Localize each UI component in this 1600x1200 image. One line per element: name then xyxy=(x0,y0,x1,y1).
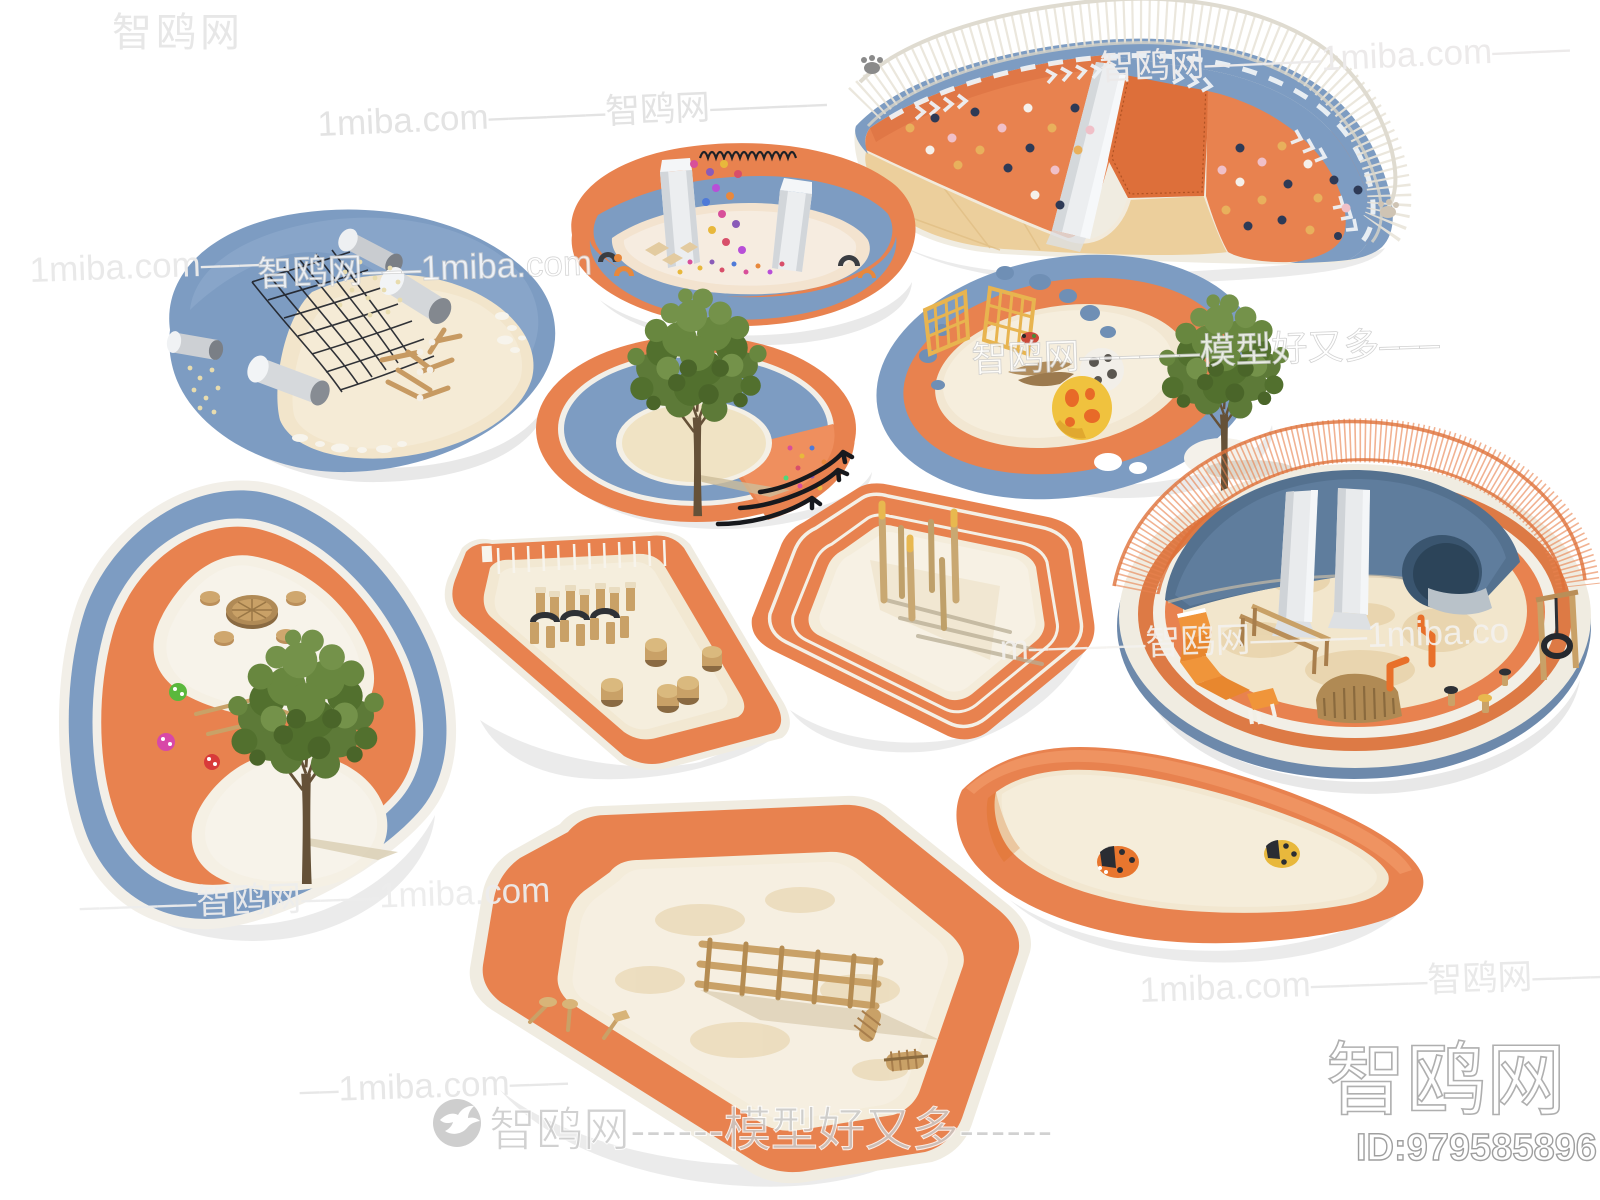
svg-text:智鸥网: 智鸥网 xyxy=(1326,1036,1566,1125)
svg-text:智鸥网------模型好又多------: 智鸥网------模型好又多------ xyxy=(489,1103,1053,1156)
svg-text:1miba.com–––: 1miba.com––– xyxy=(29,243,260,290)
svg-text:ID:979585896: ID:979585896 xyxy=(1356,1127,1597,1169)
svg-text:智鸥网: 智鸥网 xyxy=(112,11,244,55)
